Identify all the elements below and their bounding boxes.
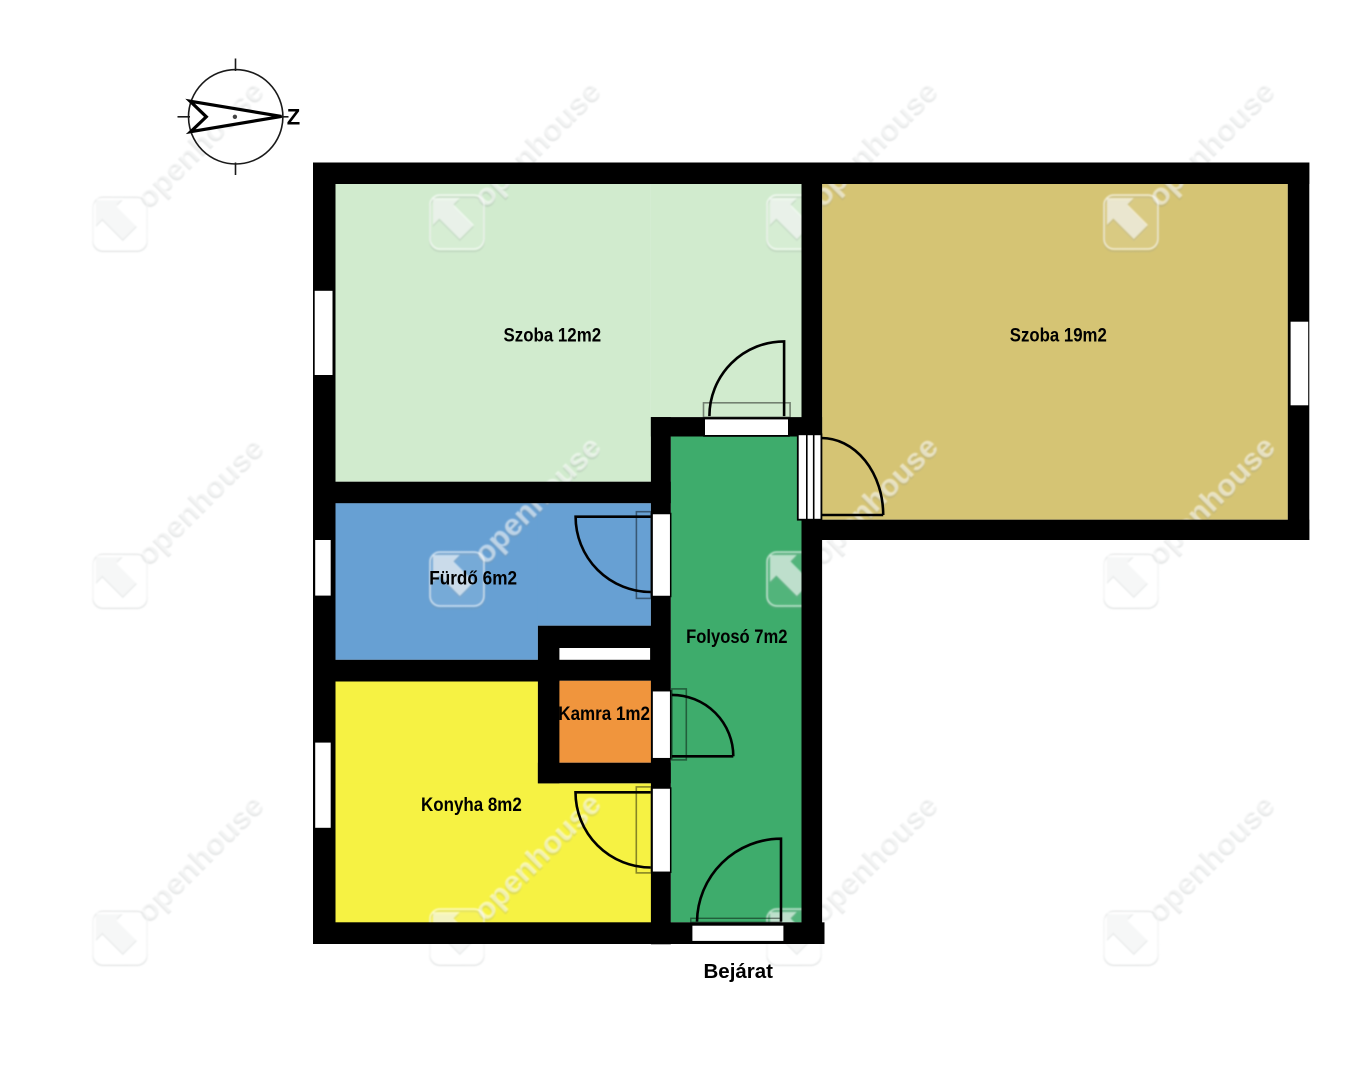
svg-text:Z: Z bbox=[287, 105, 300, 130]
svg-text:Szoba 19m2: Szoba 19m2 bbox=[1010, 324, 1107, 346]
svg-text:Folyosó 7m2: Folyosó 7m2 bbox=[686, 626, 788, 648]
svg-text:Fürdő 6m2: Fürdő 6m2 bbox=[429, 568, 517, 590]
svg-text:Konyha 8m2: Konyha 8m2 bbox=[421, 794, 522, 816]
svg-text:Kamra 1m2: Kamra 1m2 bbox=[558, 703, 650, 725]
svg-text:Szoba 12m2: Szoba 12m2 bbox=[504, 324, 602, 346]
svg-text:Bejárat: Bejárat bbox=[704, 961, 774, 983]
